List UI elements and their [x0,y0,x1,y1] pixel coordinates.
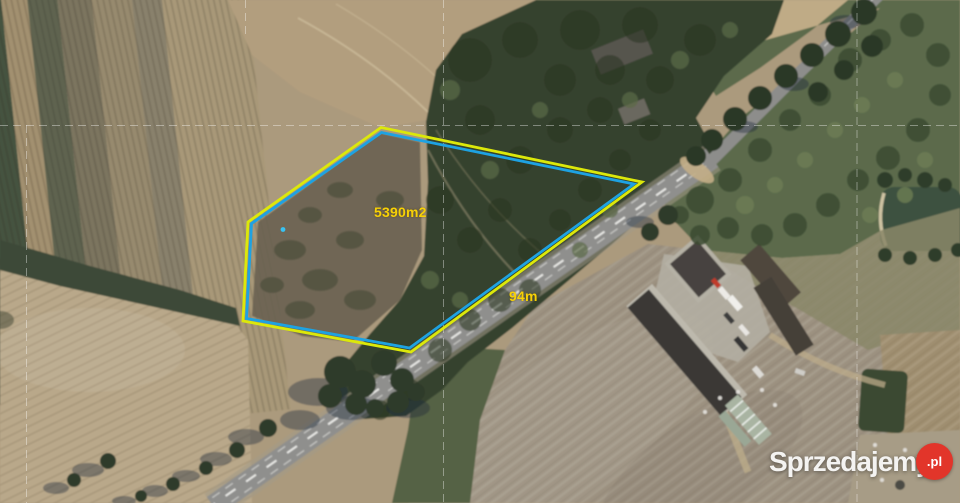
road-frontage-label: 94m [509,288,538,304]
aerial-map: 5390m2 94m Sprzedajemy .pl [0,0,960,503]
watermark-badge-label: .pl [927,454,942,469]
terrain [0,0,960,503]
watermark: Sprzedajemy .pl [769,446,959,490]
plot-area-label: 5390m2 [374,204,427,220]
satellite-scene [0,0,960,503]
watermark-badge: .pl [916,443,953,480]
watermark-brand: Sprzedajemy [769,446,931,477]
plot-marker-dot [281,227,286,232]
